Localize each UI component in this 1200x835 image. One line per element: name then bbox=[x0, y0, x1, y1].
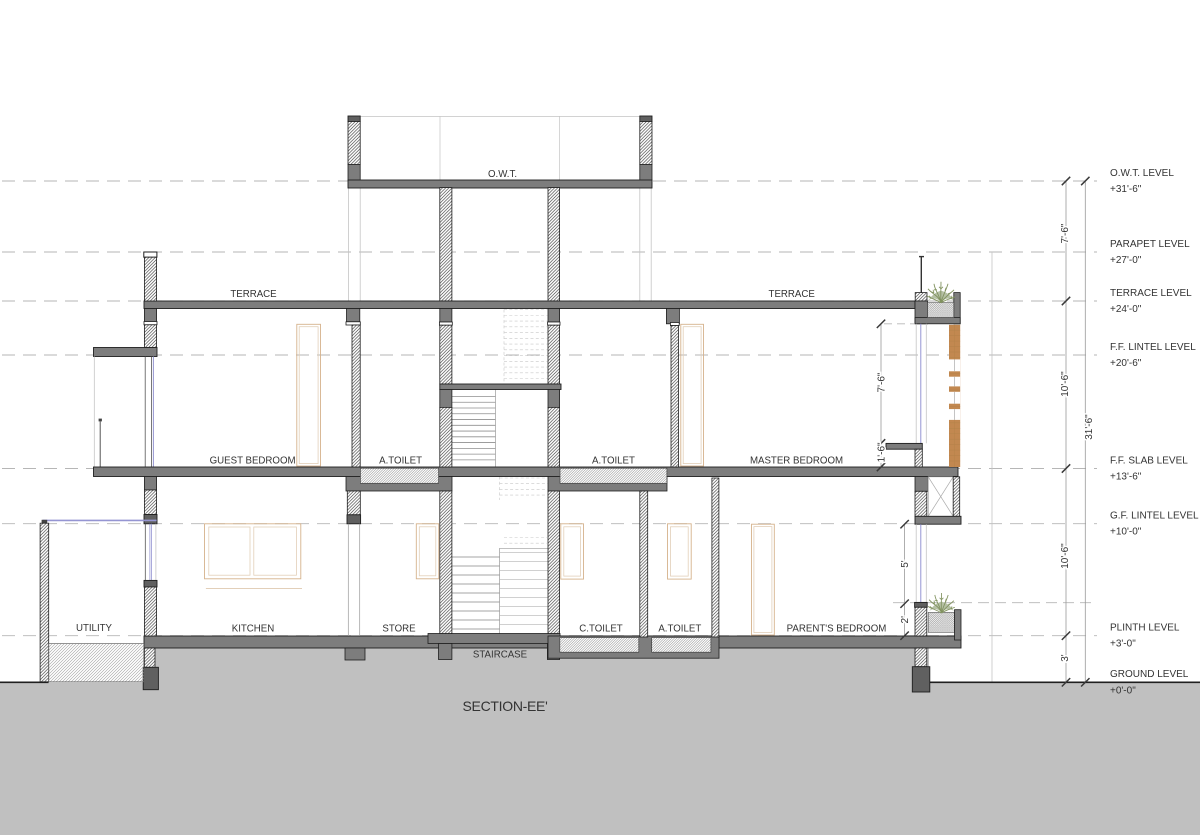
svg-text:MASTER BEDROOM: MASTER BEDROOM bbox=[750, 455, 843, 466]
svg-text:PARENT'S BEDROOM: PARENT'S BEDROOM bbox=[787, 624, 887, 635]
svg-text:7'-6": 7'-6" bbox=[876, 372, 887, 392]
svg-text:GROUND LEVEL: GROUND LEVEL bbox=[1110, 669, 1189, 680]
svg-text:TERRACE LEVEL: TERRACE LEVEL bbox=[1110, 288, 1192, 299]
svg-text:A.TOILET: A.TOILET bbox=[658, 624, 701, 635]
svg-text:KITCHEN: KITCHEN bbox=[232, 624, 275, 635]
svg-text:SECTION-EE': SECTION-EE' bbox=[463, 698, 548, 714]
svg-text:PLINTH LEVEL: PLINTH LEVEL bbox=[1110, 623, 1180, 634]
svg-text:TERRACE: TERRACE bbox=[230, 289, 277, 300]
svg-text:3': 3' bbox=[1060, 654, 1071, 662]
svg-text:STAIRCASE: STAIRCASE bbox=[473, 650, 528, 661]
svg-text:GUEST BEDROOM: GUEST BEDROOM bbox=[210, 455, 296, 466]
svg-text:+13'-6": +13'-6" bbox=[1110, 472, 1142, 483]
svg-text:G.F. LINTEL LEVEL: G.F. LINTEL LEVEL bbox=[1110, 511, 1199, 522]
svg-text:C.TOILET: C.TOILET bbox=[579, 624, 623, 635]
svg-text:5': 5' bbox=[900, 560, 911, 568]
svg-text:F.F. SLAB LEVEL: F.F. SLAB LEVEL bbox=[1110, 455, 1188, 466]
svg-text:+27'-0": +27'-0" bbox=[1110, 255, 1142, 266]
svg-text:A.TOILET: A.TOILET bbox=[592, 455, 635, 466]
svg-text:+10'-0": +10'-0" bbox=[1110, 527, 1142, 538]
svg-text:7'-6": 7'-6" bbox=[1060, 223, 1071, 243]
svg-text:1'-6": 1'-6" bbox=[876, 442, 887, 462]
svg-text:O.W.T.: O.W.T. bbox=[488, 169, 517, 180]
svg-text:O.W.T. LEVEL: O.W.T. LEVEL bbox=[1110, 168, 1174, 179]
svg-text:UTILITY: UTILITY bbox=[76, 623, 113, 634]
svg-text:STORE: STORE bbox=[382, 624, 416, 635]
svg-text:+24'-0": +24'-0" bbox=[1110, 304, 1142, 315]
svg-text:+3'-0": +3'-0" bbox=[1110, 639, 1136, 650]
svg-text:F.F. LINTEL LEVEL: F.F. LINTEL LEVEL bbox=[1110, 342, 1196, 353]
svg-text:+31'-6": +31'-6" bbox=[1110, 184, 1142, 195]
svg-text:31'-6": 31'-6" bbox=[1084, 414, 1095, 440]
svg-text:TERRACE: TERRACE bbox=[769, 289, 816, 300]
svg-text:+0'-0": +0'-0" bbox=[1110, 685, 1136, 696]
svg-text:10'-6": 10'-6" bbox=[1060, 371, 1071, 397]
svg-text:+20'-6": +20'-6" bbox=[1110, 358, 1142, 369]
svg-text:PARAPET LEVEL: PARAPET LEVEL bbox=[1110, 239, 1190, 250]
svg-text:10'-6": 10'-6" bbox=[1060, 543, 1071, 569]
svg-text:2': 2' bbox=[900, 616, 911, 624]
svg-text:A.TOILET: A.TOILET bbox=[379, 455, 422, 466]
